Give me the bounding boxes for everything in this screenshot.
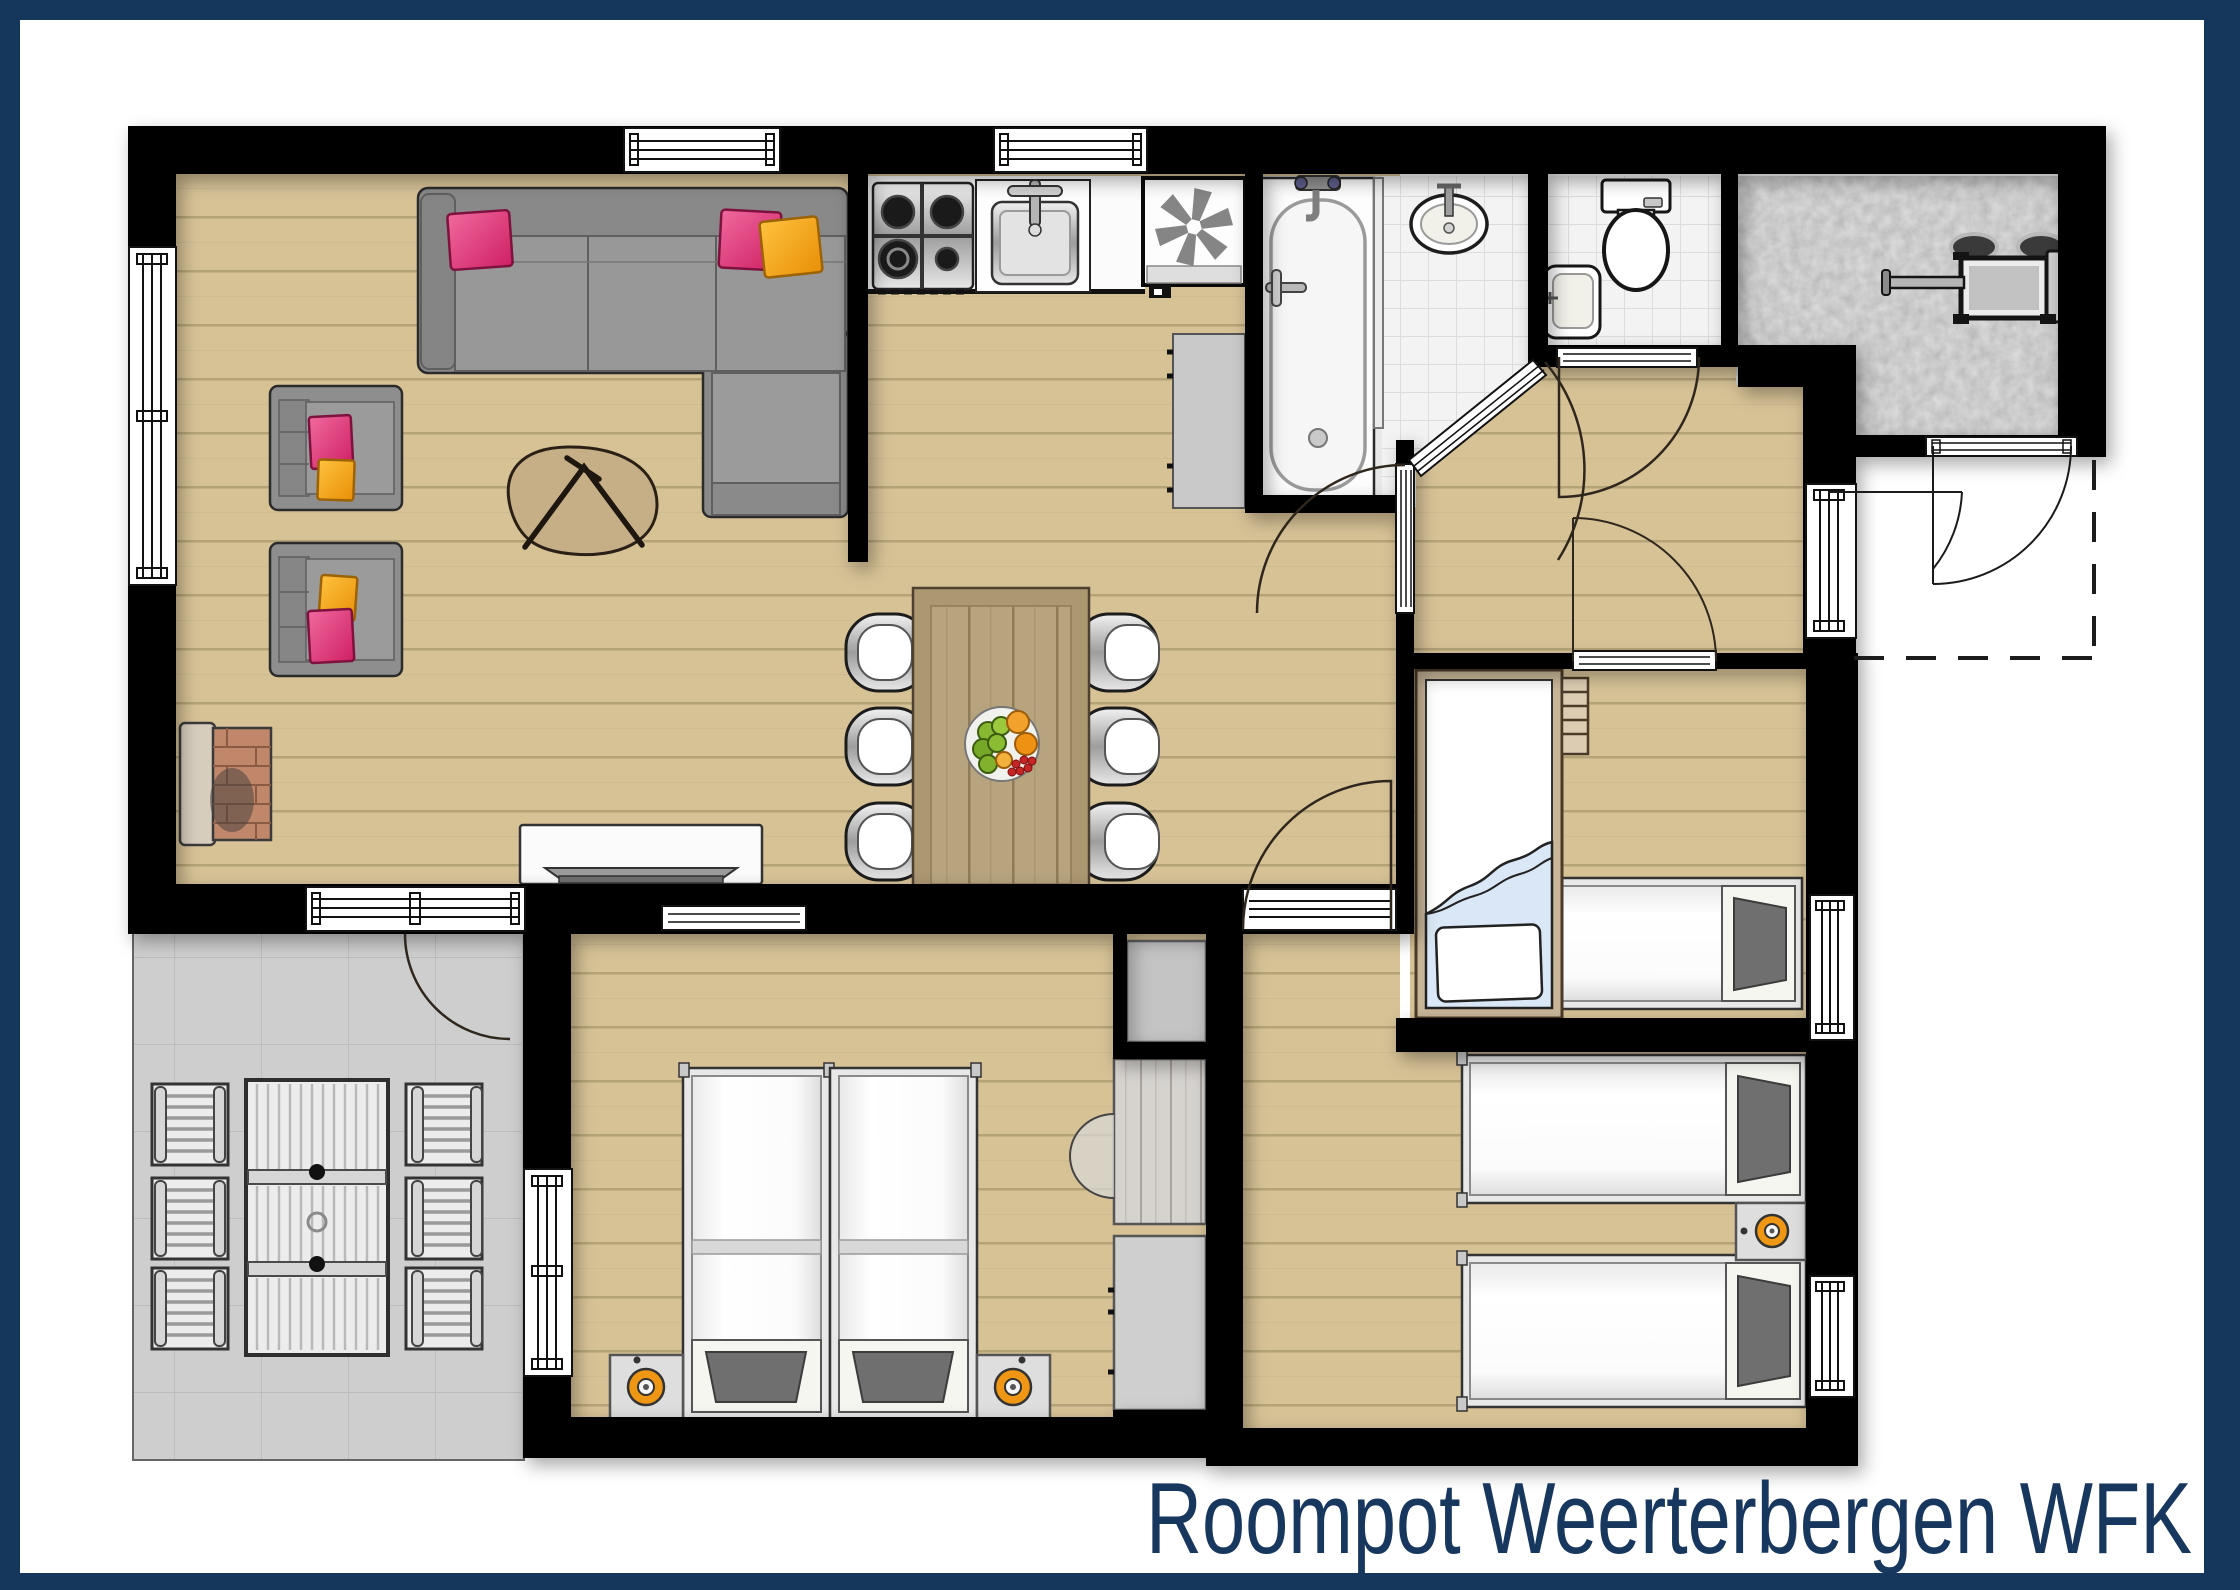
svg-text:Roompot Weerterbergen WFK: Roompot Weerterbergen WFK — [1146, 1463, 2192, 1575]
